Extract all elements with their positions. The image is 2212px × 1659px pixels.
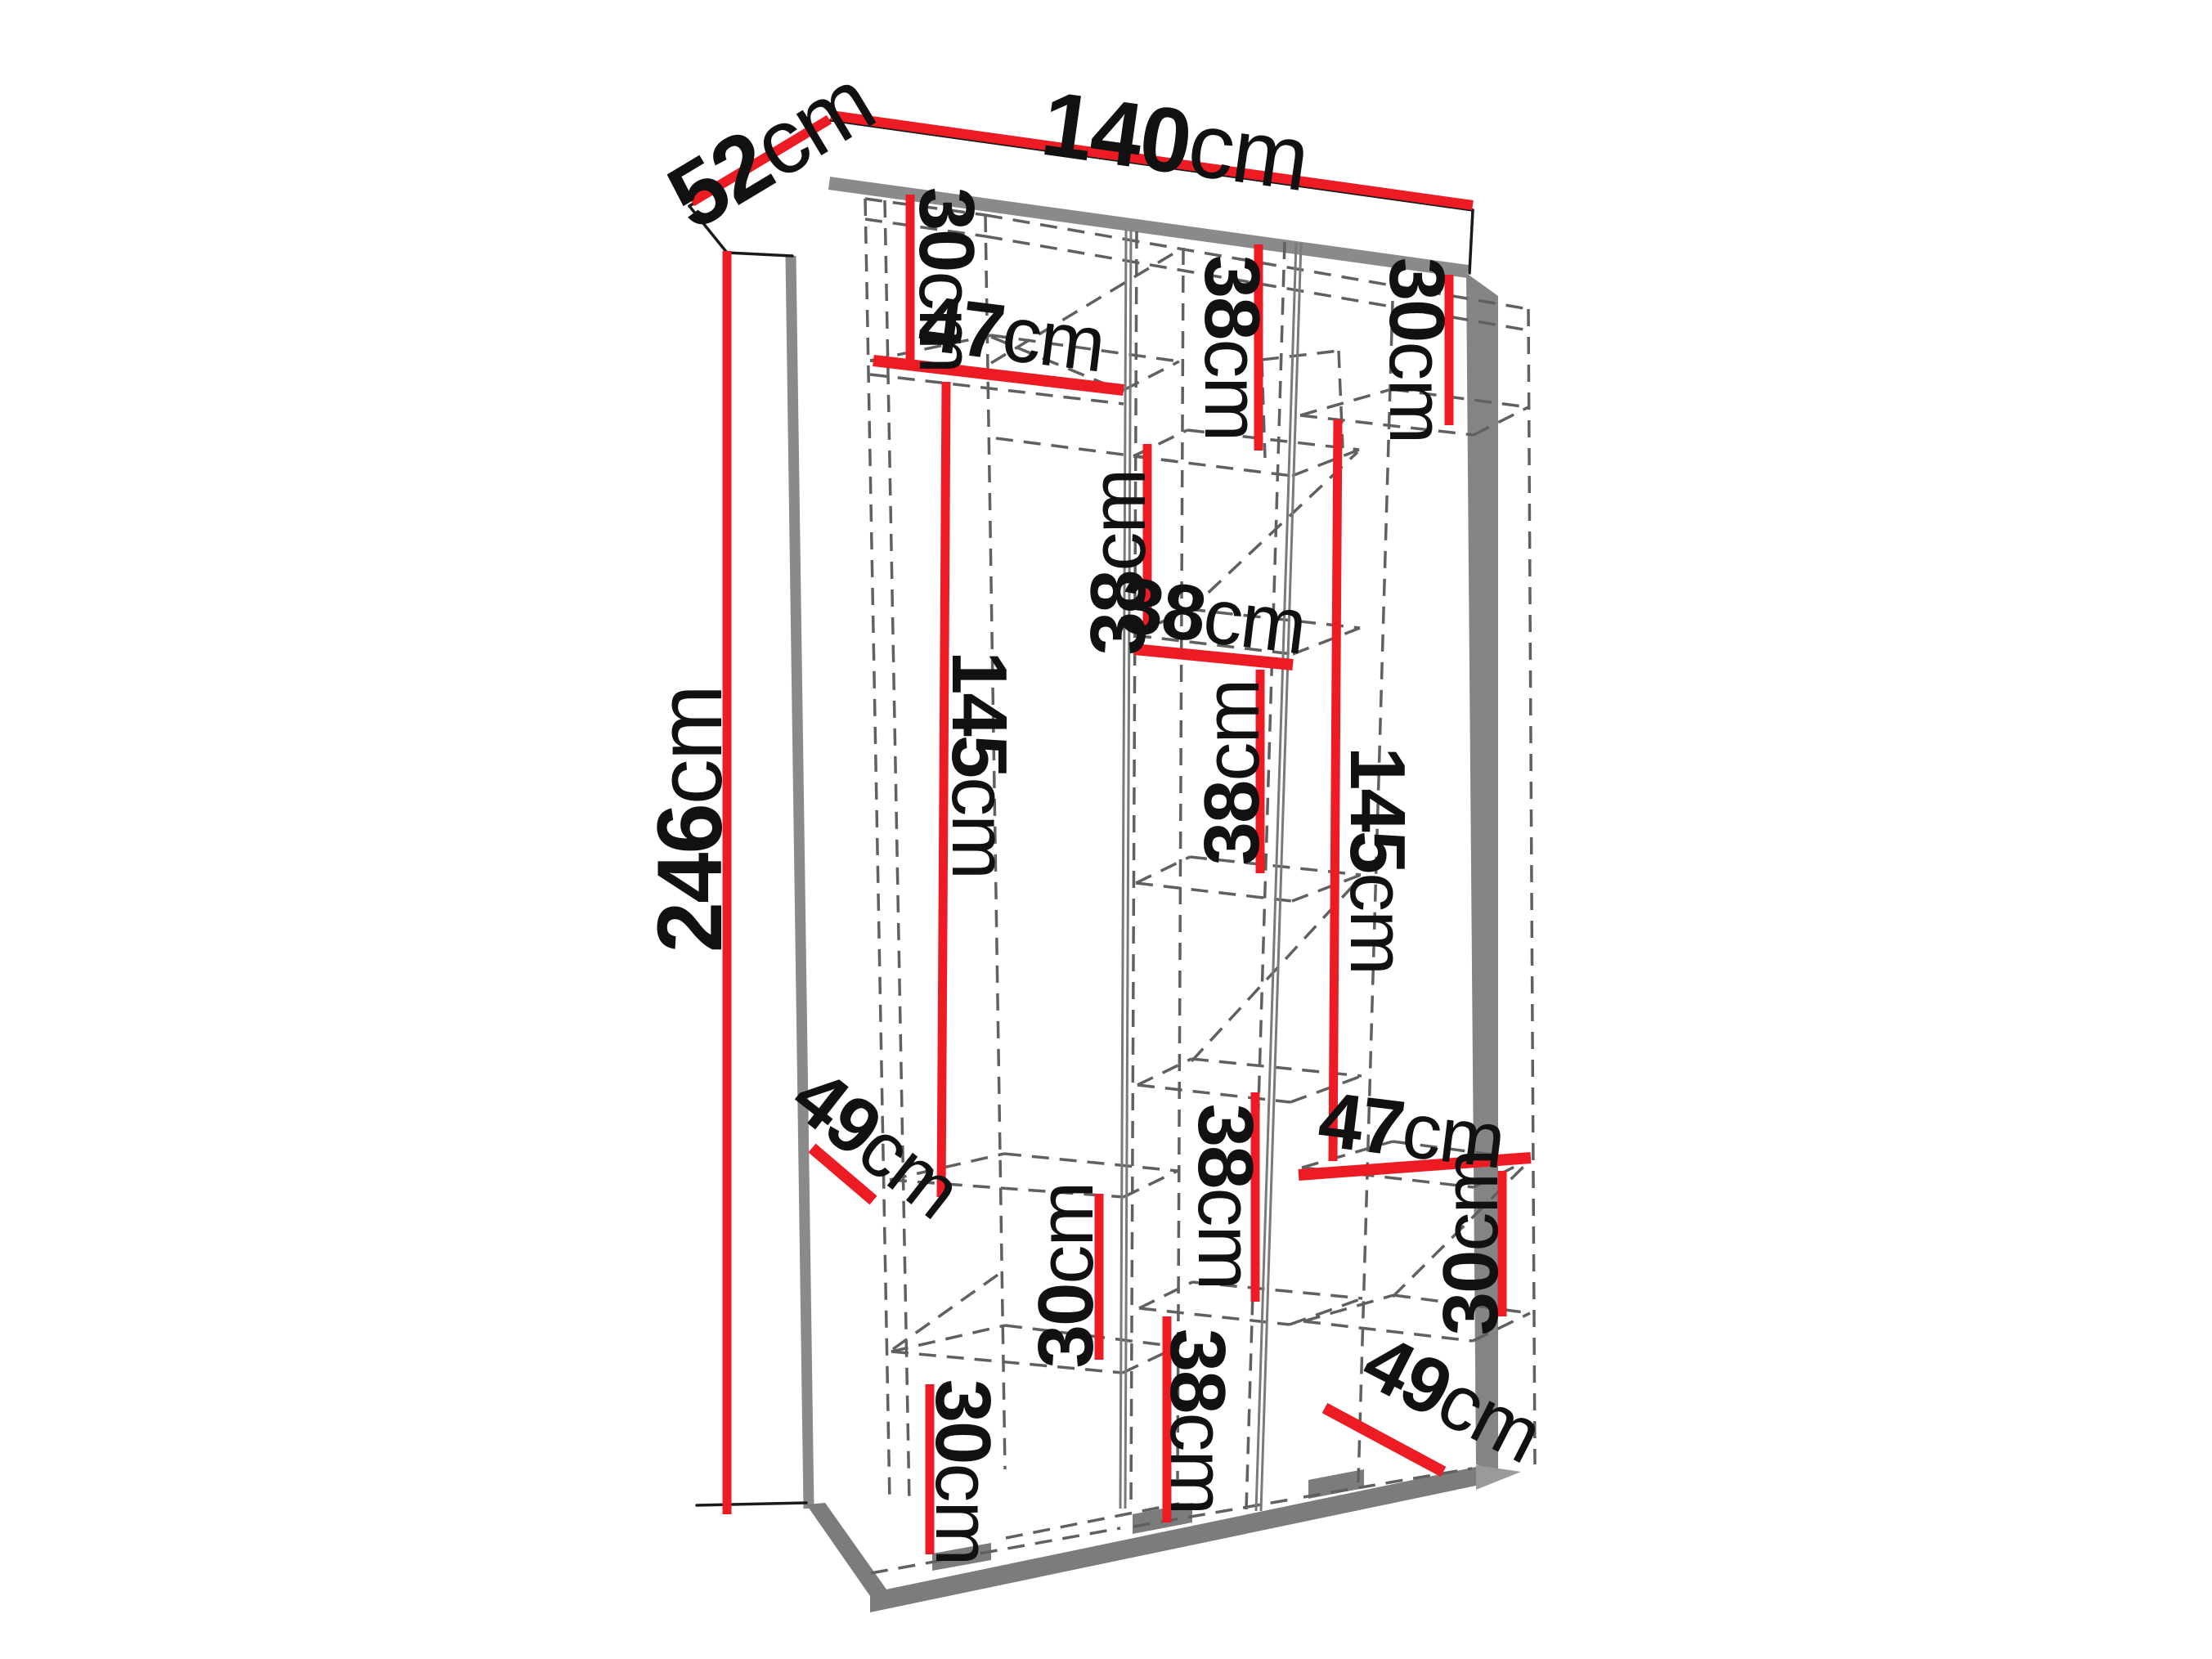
label-overall-width: 140cm [1036, 71, 1314, 209]
label-right-lower-30: 30cm [1427, 1150, 1514, 1336]
label-mid-38-3: 38cm [1188, 680, 1276, 866]
label-overall-height: 246cm [639, 686, 741, 953]
height-extension-bottom [697, 1503, 806, 1505]
left-front-edge [791, 256, 809, 1509]
height-extension-top [727, 253, 792, 256]
label-left-hanging-145: 145cm [936, 651, 1024, 878]
wardrobe-diagram-canvas: 140cm 52cm 246cm 30cm 47cm 145cm 49cm 30… [0, 0, 2212, 1659]
plinth-left-face [806, 1503, 889, 1596]
label-right-hanging-145: 145cm [1335, 747, 1422, 974]
label-mid-38-5: 38cm [1155, 1329, 1242, 1514]
label-mid-38-4: 38cm [1182, 1104, 1270, 1289]
label-overall-depth: 52cm [651, 49, 890, 249]
label-left-lower-30b: 30cm [920, 1379, 1007, 1565]
label-right-depth-49: 49cm [1350, 1317, 1555, 1479]
top-right-corner-line [1469, 210, 1473, 273]
label-right-top-30: 30cm [1374, 258, 1461, 443]
dimension-labels: 140cm 52cm 246cm 30cm 47cm 145cm 49cm 30… [639, 49, 1555, 1564]
label-mid-38-1: 38cm [1189, 255, 1276, 441]
label-left-lower-30a: 30cm [1022, 1183, 1110, 1369]
wardrobe-dimension-diagram-page: { "diagram": { "object": "wardrobe-inter… [0, 0, 2212, 1659]
